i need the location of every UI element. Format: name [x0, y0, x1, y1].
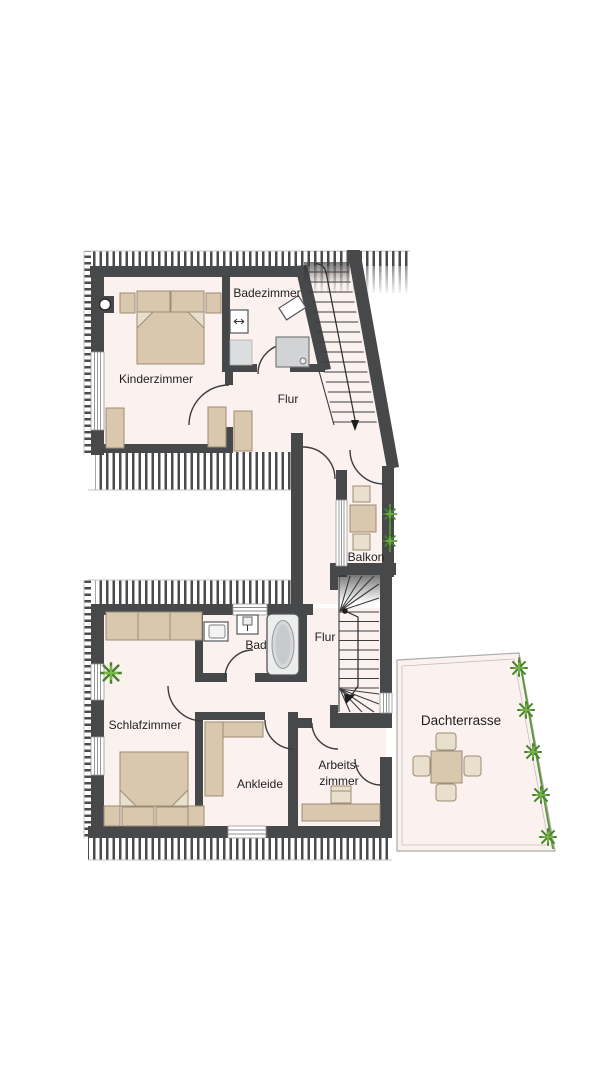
ankleide-window [228, 826, 266, 838]
lower-left-wall [91, 604, 104, 838]
stair-top-left-stub [330, 575, 338, 590]
upper-bottom-hatch [88, 452, 291, 490]
floorplan-page: Badezimmer Kinderzimmer Flur Balkon Bad … [0, 0, 608, 1080]
flur-wardrobe [234, 411, 252, 451]
stair-bottom-stub [338, 713, 392, 728]
kinderzimmer-flur-wall-top [225, 372, 233, 385]
stair-right-wall [380, 575, 392, 693]
ankleide-top-wall [203, 712, 265, 720]
badezimmer-sink [230, 310, 248, 333]
label-flur-lower: Flur [315, 630, 336, 644]
label-kinderzimmer: Kinderzimmer [119, 372, 193, 386]
label-dachterrasse: Dachterrasse [421, 713, 501, 728]
bad-bottom-wall-left [195, 673, 227, 682]
schlafzimmer-window-lower [91, 737, 104, 775]
badezimmer-left-wall [222, 277, 230, 372]
lower-top-hatch [88, 580, 303, 604]
label-flur-upper: Flur [278, 392, 299, 406]
label-arbeitszimmer-line2: zimmer [319, 774, 358, 788]
badezimmer-shaft [230, 340, 252, 365]
upper-top-wall [90, 266, 302, 277]
schlafzimmer-window-upper [91, 664, 104, 700]
balkon-glazing-stub-top [336, 470, 347, 500]
corridor-left-wall [291, 433, 303, 604]
label-balkon: Balkon [348, 550, 385, 564]
ankleide-right-wall [288, 712, 298, 826]
arbeitszimmer-right-wall [380, 757, 392, 826]
label-schlafzimmer: Schlafzimmer [109, 718, 182, 732]
flur-bottom-wall [298, 718, 312, 728]
upper-hatch-fade-over-stairs [298, 251, 410, 293]
schlafzimmer-plant [100, 662, 122, 684]
stair-window [380, 693, 392, 713]
bad-toilet [237, 615, 258, 634]
label-badezimmer: Badezimmer [233, 286, 300, 300]
floorplan-drawing: Badezimmer Kinderzimmer Flur Balkon Bad … [0, 0, 608, 1080]
upper-left-hatch [84, 251, 91, 455]
label-arbeitszimmer-line1: Arbeits- [318, 758, 359, 772]
label-bad: Bad [245, 638, 266, 652]
lower-left-hatch [84, 580, 91, 838]
bad-bathtub [267, 614, 299, 675]
balkon-glazing [336, 500, 347, 566]
bad-window [233, 604, 267, 615]
lower-bottom-hatch [88, 838, 392, 860]
schlafzimmer-sofa [106, 612, 202, 640]
kinderzimmer-cabinet [106, 408, 124, 448]
kinderzimmer-wardrobe [208, 407, 226, 447]
bad-sink [204, 622, 228, 641]
kinderzimmer-window [91, 352, 104, 430]
kinderzimmer-column [97, 296, 114, 313]
label-ankleide: Ankleide [237, 777, 283, 791]
badezimmer-shower [276, 337, 309, 367]
stair-bottom-left-stub [330, 705, 338, 728]
